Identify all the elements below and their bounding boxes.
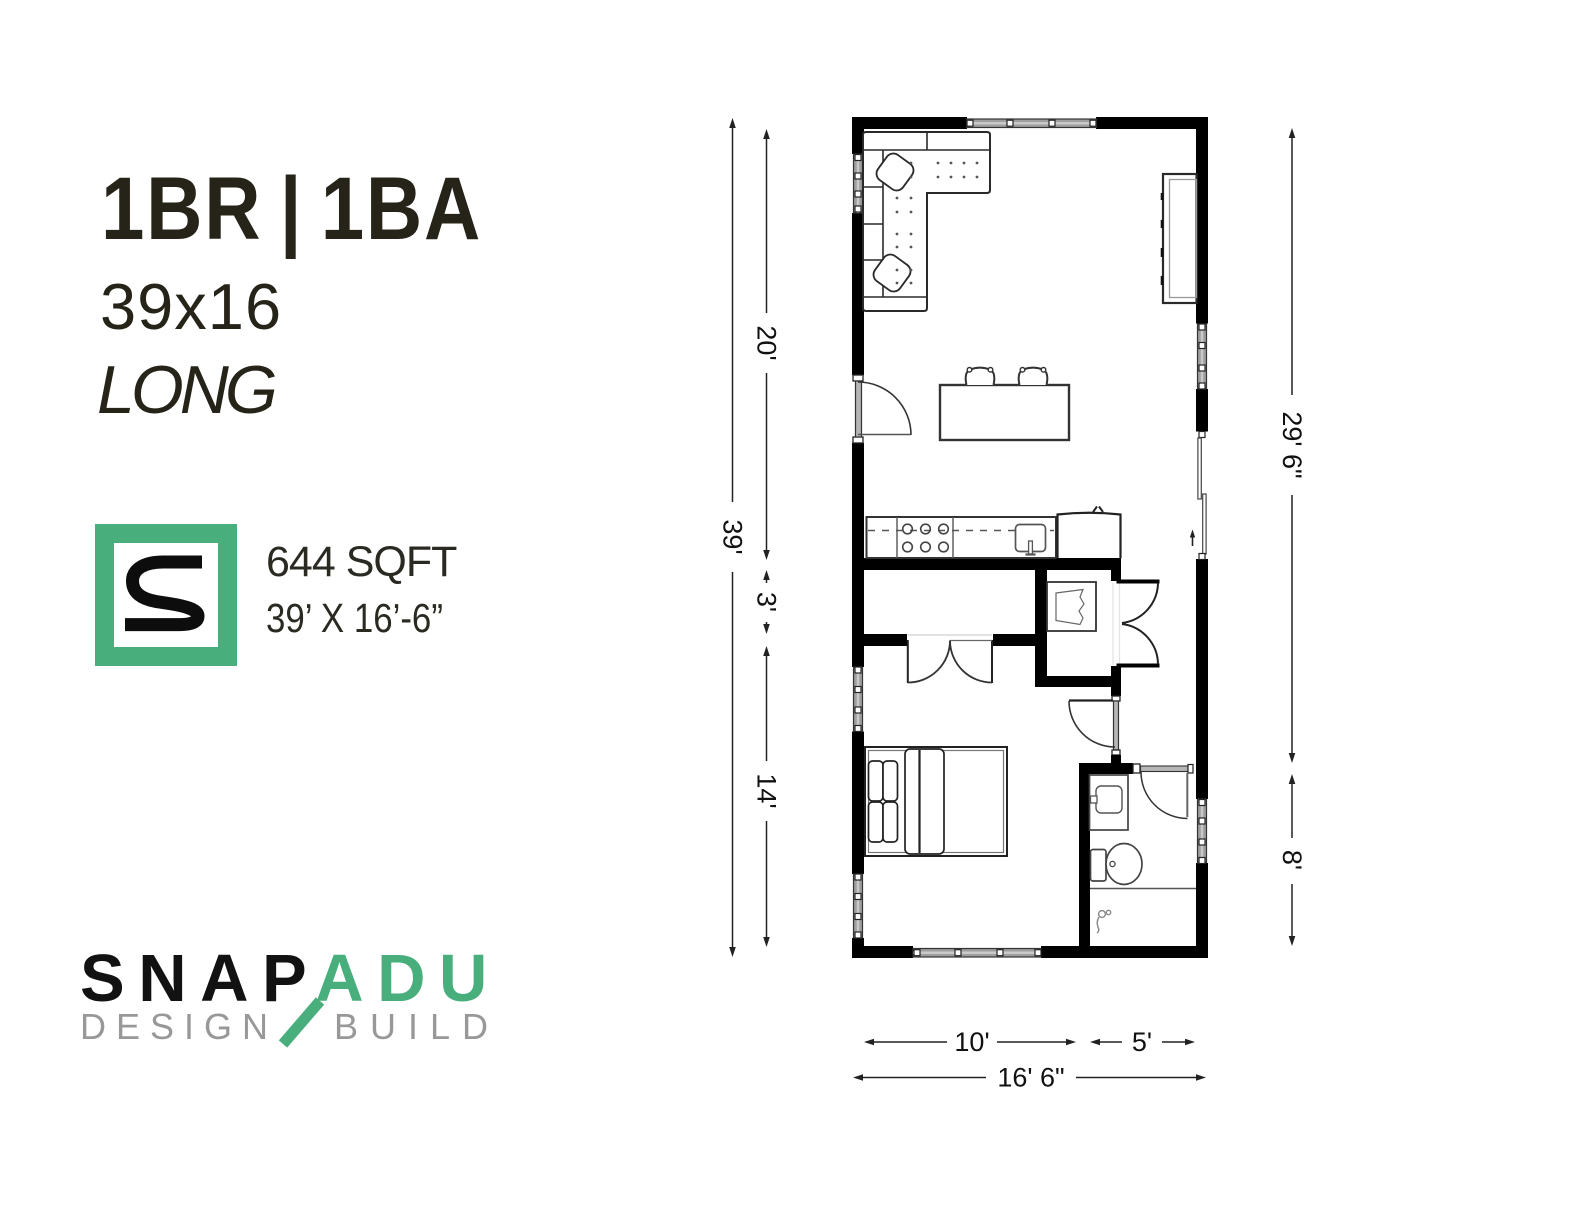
svg-text:10': 10' xyxy=(954,1027,989,1057)
svg-text:39': 39' xyxy=(718,519,748,554)
svg-text:3': 3' xyxy=(752,592,782,612)
svg-text:8': 8' xyxy=(1277,850,1307,870)
svg-text:16' 6": 16' 6" xyxy=(997,1063,1064,1093)
svg-text:14': 14' xyxy=(752,773,782,808)
svg-text:29' 6": 29' 6" xyxy=(1277,411,1307,478)
svg-text:5': 5' xyxy=(1132,1027,1152,1057)
svg-text:20': 20' xyxy=(752,325,782,360)
